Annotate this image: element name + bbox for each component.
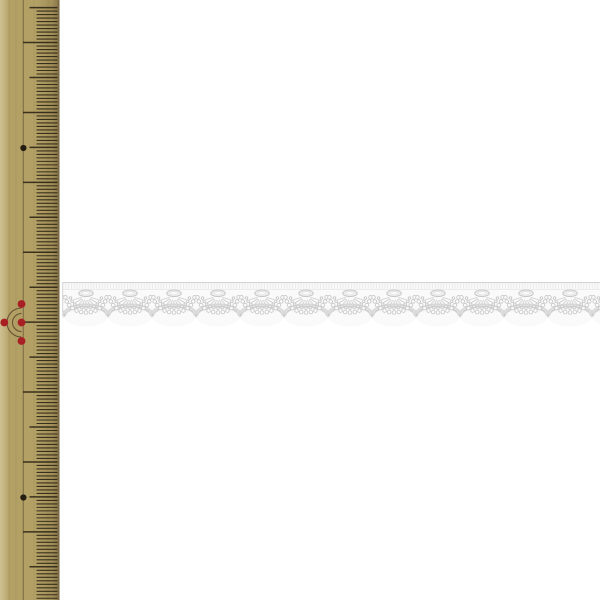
wooden-ruler — [0, 0, 60, 600]
lace-trim — [20, 282, 600, 327]
product-photo — [0, 0, 600, 600]
photo-canvas — [0, 0, 600, 600]
